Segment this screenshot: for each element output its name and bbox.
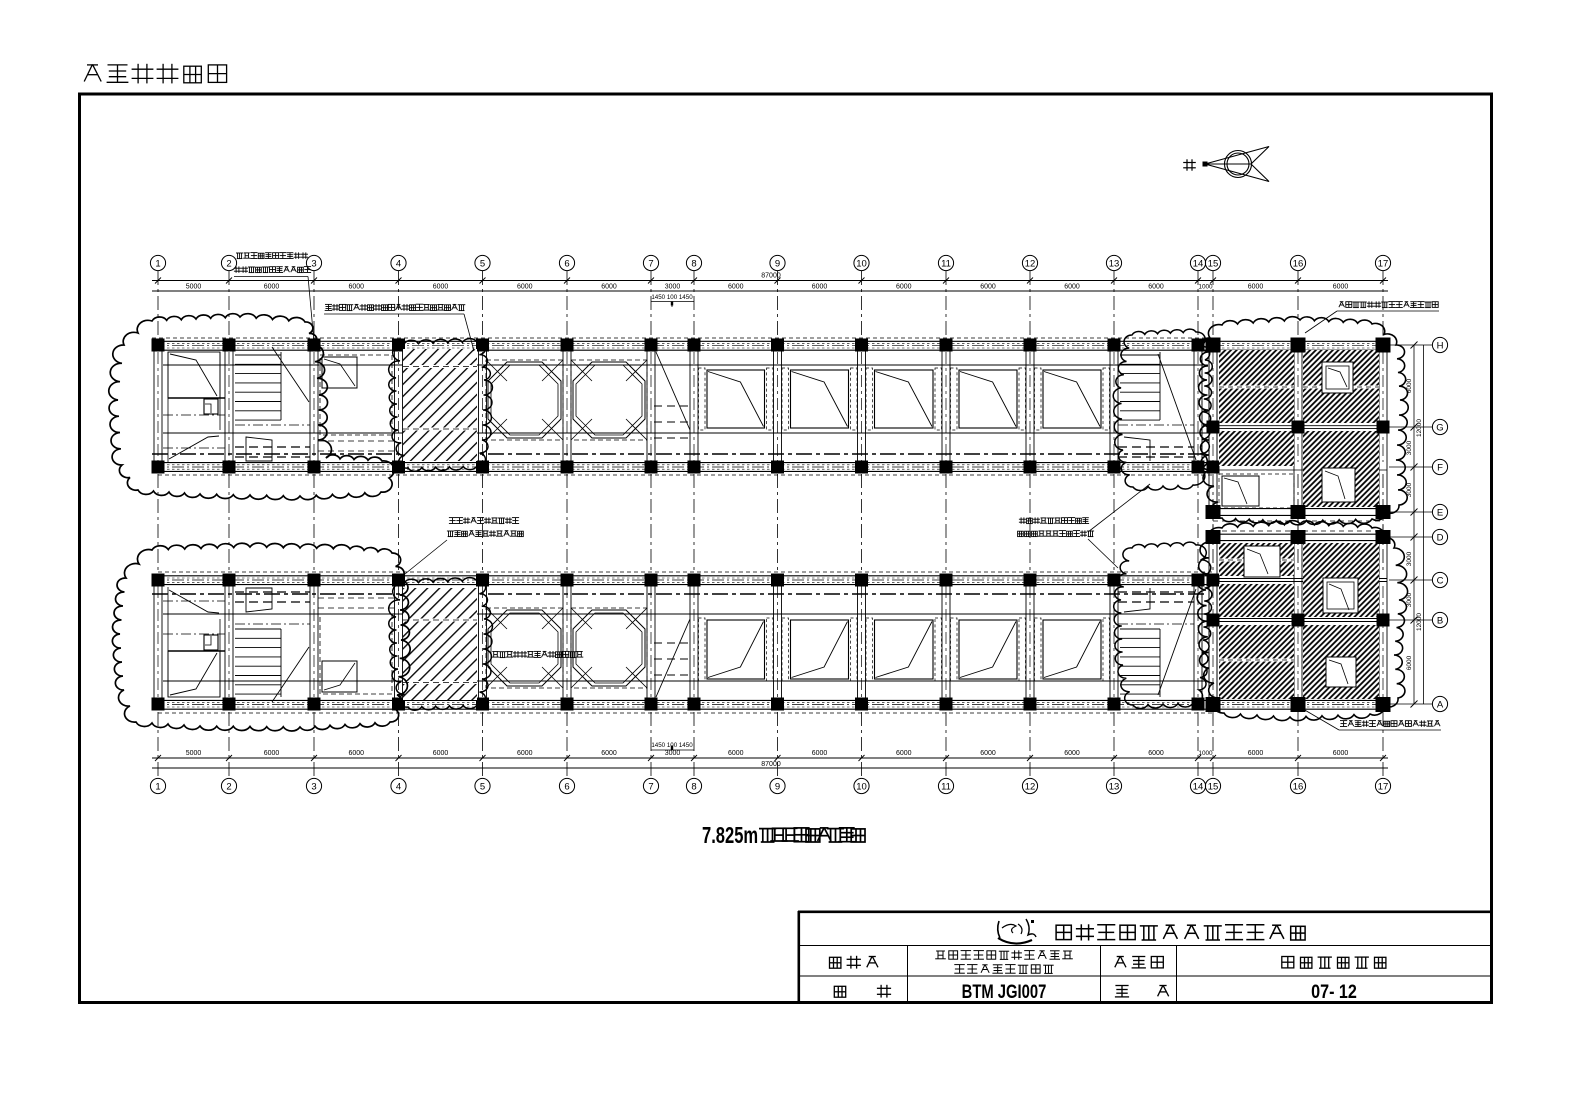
svg-text:14: 14 — [1193, 781, 1204, 792]
svg-text:12: 12 — [1025, 258, 1036, 269]
svg-text:6000: 6000 — [1333, 284, 1349, 291]
svg-text:8: 8 — [691, 781, 696, 792]
svg-text:H: H — [1437, 340, 1444, 351]
svg-text:6000: 6000 — [1148, 284, 1164, 291]
svg-text:10: 10 — [856, 258, 867, 269]
svg-text:6: 6 — [564, 781, 569, 792]
svg-text:6000: 6000 — [728, 750, 744, 757]
svg-text:13: 13 — [1109, 781, 1120, 792]
svg-text:6000: 6000 — [1333, 750, 1349, 757]
svg-text:6000: 6000 — [980, 284, 996, 291]
svg-text:3000: 3000 — [665, 284, 681, 291]
svg-text:G: G — [1436, 422, 1443, 433]
svg-text:07- 12: 07- 12 — [1311, 981, 1357, 1003]
svg-text:10: 10 — [856, 781, 867, 792]
svg-text:4: 4 — [396, 781, 401, 792]
svg-text:6: 6 — [564, 258, 569, 269]
svg-text:13: 13 — [1109, 258, 1120, 269]
svg-text:5000: 5000 — [186, 284, 202, 291]
svg-text:5: 5 — [480, 781, 485, 792]
svg-text:A: A — [1437, 699, 1444, 710]
svg-text:BTM JGI007: BTM JGI007 — [962, 981, 1047, 1002]
svg-text:1: 1 — [155, 258, 160, 269]
svg-text:3000: 3000 — [1406, 440, 1413, 455]
svg-text:17: 17 — [1378, 781, 1389, 792]
svg-text:C: C — [1437, 575, 1444, 586]
svg-text:15: 15 — [1208, 781, 1219, 792]
svg-text:14: 14 — [1193, 258, 1204, 269]
svg-text:9: 9 — [775, 781, 780, 792]
svg-text:6000: 6000 — [812, 284, 828, 291]
svg-text:D: D — [1437, 532, 1444, 543]
svg-text:6000: 6000 — [1064, 750, 1080, 757]
svg-text:2: 2 — [226, 258, 231, 269]
svg-text:3000: 3000 — [1406, 551, 1413, 566]
svg-text:6000: 6000 — [1406, 655, 1413, 670]
svg-text:8: 8 — [691, 258, 696, 269]
svg-text:6000: 6000 — [517, 284, 533, 291]
svg-text:1: 1 — [155, 781, 160, 792]
svg-text:11: 11 — [941, 258, 951, 269]
svg-text:B: B — [1437, 615, 1443, 626]
svg-text:7: 7 — [648, 258, 653, 269]
svg-text:6000: 6000 — [1064, 284, 1080, 291]
svg-text:7.825m: 7.825m — [702, 823, 758, 848]
svg-text:12: 12 — [1025, 781, 1036, 792]
svg-text:1000: 1000 — [1198, 284, 1213, 291]
svg-text:11: 11 — [941, 781, 951, 792]
svg-text:6000: 6000 — [812, 750, 828, 757]
svg-text:7: 7 — [648, 781, 653, 792]
svg-text:6000: 6000 — [1248, 750, 1264, 757]
svg-text:12000: 12000 — [1416, 613, 1423, 631]
svg-text:12000: 12000 — [1416, 419, 1423, 437]
svg-text:6000: 6000 — [348, 284, 364, 291]
svg-text:6000: 6000 — [728, 284, 744, 291]
svg-text:9: 9 — [775, 258, 780, 269]
svg-text:2: 2 — [226, 781, 231, 792]
svg-text:6000: 6000 — [433, 284, 449, 291]
svg-text:6000: 6000 — [264, 750, 280, 757]
svg-text:3: 3 — [311, 781, 316, 792]
svg-text:5: 5 — [480, 258, 485, 269]
svg-text:3000: 3000 — [665, 750, 681, 757]
svg-text:6000: 6000 — [1148, 750, 1164, 757]
svg-text:17: 17 — [1378, 258, 1389, 269]
svg-text:E: E — [1437, 507, 1443, 518]
svg-text:16: 16 — [1293, 781, 1304, 792]
svg-text:6000: 6000 — [1248, 284, 1264, 291]
svg-text:6000: 6000 — [980, 750, 996, 757]
svg-text:4: 4 — [396, 258, 401, 269]
svg-text:6000: 6000 — [601, 284, 617, 291]
svg-text:16: 16 — [1293, 258, 1304, 269]
svg-text:3: 3 — [311, 258, 316, 269]
svg-text:87000: 87000 — [761, 273, 781, 280]
svg-text:6000: 6000 — [896, 750, 912, 757]
svg-text:F: F — [1437, 462, 1443, 473]
svg-text:15: 15 — [1208, 258, 1219, 269]
svg-text:6000: 6000 — [348, 750, 364, 757]
svg-text:5000: 5000 — [186, 750, 202, 757]
svg-text:6000: 6000 — [264, 284, 280, 291]
svg-text:1450 100 1450: 1450 100 1450 — [651, 294, 693, 301]
svg-text:6000: 6000 — [601, 750, 617, 757]
svg-text:6000: 6000 — [896, 284, 912, 291]
svg-text:87000: 87000 — [761, 761, 781, 768]
svg-text:6000: 6000 — [433, 750, 449, 757]
svg-text:6000: 6000 — [517, 750, 533, 757]
